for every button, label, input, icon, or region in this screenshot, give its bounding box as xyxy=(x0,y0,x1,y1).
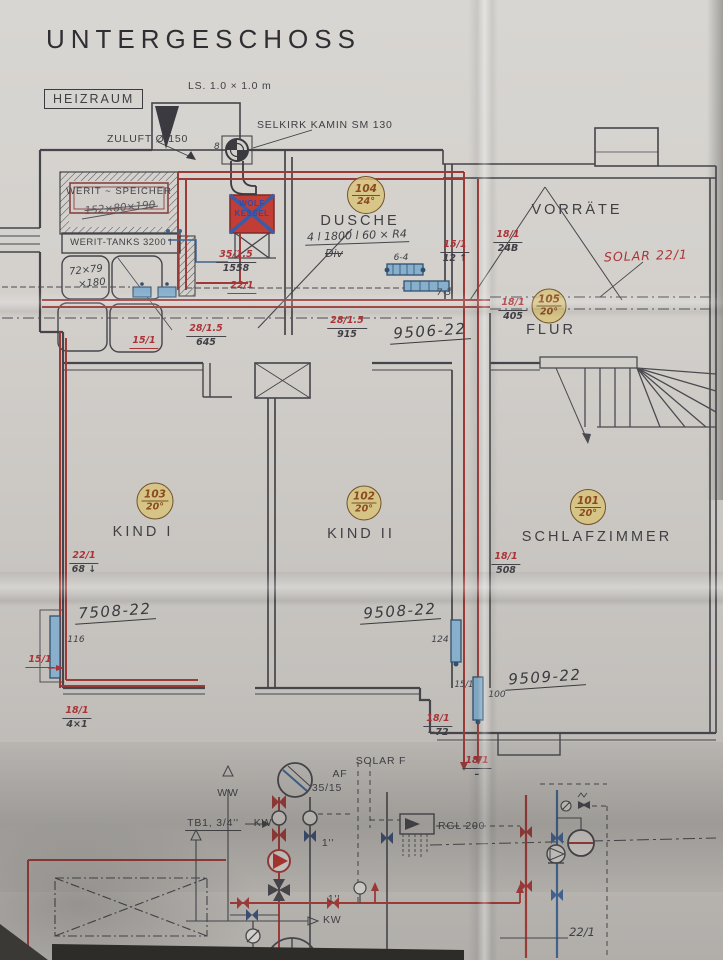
kessel-label-1: WOLF xyxy=(239,199,265,208)
room-temp: 20° xyxy=(540,307,558,319)
room-name-kind2: KIND II xyxy=(327,526,395,542)
shaft-label: LS. 1.0 × 1.0 m xyxy=(188,80,272,92)
room-stamp-schlafzimmer: 101 20° xyxy=(570,489,606,525)
room-number: 101 xyxy=(575,495,602,508)
pipe-annotation: 18/1~72 xyxy=(423,714,452,739)
pipe-annotation: 18/124B xyxy=(493,230,522,255)
stairs xyxy=(540,357,716,444)
room-stamp-kind2: 102 20° xyxy=(347,486,382,521)
pipe-annotation: 15/1 xyxy=(25,655,54,668)
pipe-annotation: 18/1508 xyxy=(491,552,520,577)
radiator-label: 15/1 xyxy=(454,680,473,690)
rgl-label: RGL 200 xyxy=(438,820,485,832)
room-number: 105 xyxy=(536,294,562,307)
pipe-annotation: 18/1– xyxy=(462,756,491,781)
room-name-schlafzimmer: SCHLAFZIMMER xyxy=(522,529,672,545)
schematic-center xyxy=(186,762,716,960)
room-stamp-flur: 105 20° xyxy=(532,289,567,324)
kessel-label-2: KESSEL xyxy=(234,209,269,218)
radiator-label: 7-3 xyxy=(437,288,452,298)
solar-f-label: SOLAR F xyxy=(356,755,407,767)
room-name-kind1: KIND I xyxy=(113,524,174,540)
solar-label: SOLAR 22/1 xyxy=(604,247,689,265)
manifold xyxy=(133,282,176,297)
floorplan-photo: UNTERGESCHOSS HEIZRAUM LS. 1.0 × 1.0 m S… xyxy=(0,0,723,960)
room-stamp-dusche: 104 24° xyxy=(347,176,385,214)
pipe-22-1-label: 22/1 xyxy=(569,925,595,939)
room-label-heizraum: HEIZRAUM xyxy=(44,89,143,109)
inch-label-2: 1'' xyxy=(328,893,340,905)
tb1-label: TB1, 3/4'' xyxy=(185,817,241,831)
room-name-flur: FLUR xyxy=(526,322,576,338)
room-temp: 20° xyxy=(146,502,164,514)
page-title: UNTERGESCHOSS xyxy=(46,24,361,55)
chimney-label: SELKIRK KAMIN SM 130 xyxy=(257,119,393,131)
room-name-vorraete: VORRÄTE xyxy=(531,202,622,218)
room-number: 103 xyxy=(141,489,168,502)
pipe-annotation: 28/1.5915 xyxy=(327,316,367,341)
radiator-label: 6-4 xyxy=(394,253,409,263)
radiator-label: 116 xyxy=(67,635,84,645)
room-number: 104 xyxy=(352,183,380,196)
room-stamp-kind1: 103 20° xyxy=(137,483,174,520)
speicher-label: WERIT ~ SPEICHER xyxy=(66,186,172,197)
pipe-annotation: 28/1.5645 xyxy=(186,324,226,349)
room-temp: 20° xyxy=(355,504,373,516)
tanks-label: WERIT-TANKS 3200 l xyxy=(70,237,172,248)
af-label: AF xyxy=(332,768,347,780)
ww-label: WW xyxy=(217,787,238,799)
pipe-annotation: 18/1405 xyxy=(498,298,527,323)
room-temp: 24° xyxy=(357,196,375,208)
zuluft-label: ZULUFT Ø 150 xyxy=(107,133,188,145)
flue-size-label: 8 xyxy=(214,142,220,152)
pipe-annotation: 35/1.51558 xyxy=(216,250,256,275)
kw-label-2: KW xyxy=(323,914,342,926)
pipe-annotation: 18/14×1 xyxy=(62,706,91,731)
dim-35-15-label: 35/15 xyxy=(312,782,342,794)
dusche-note2: Div xyxy=(325,247,343,260)
radiator-label: 100 xyxy=(488,690,505,700)
room-name-dusche: DUSCHE xyxy=(320,213,399,229)
room-temp: 20° xyxy=(579,508,597,520)
pipe-annotation: 15/1 xyxy=(129,336,158,349)
kw-label: KW xyxy=(254,817,273,829)
pipe-annotation: 22/168 ↓ xyxy=(69,551,98,576)
room-number: 102 xyxy=(351,491,377,504)
inch-label: 1'' xyxy=(322,837,334,849)
pipe-annotation: 22/1 xyxy=(227,281,256,294)
radiator-label: 124 xyxy=(431,635,448,645)
pipe-annotation: 15/112 ↑ xyxy=(440,240,469,265)
